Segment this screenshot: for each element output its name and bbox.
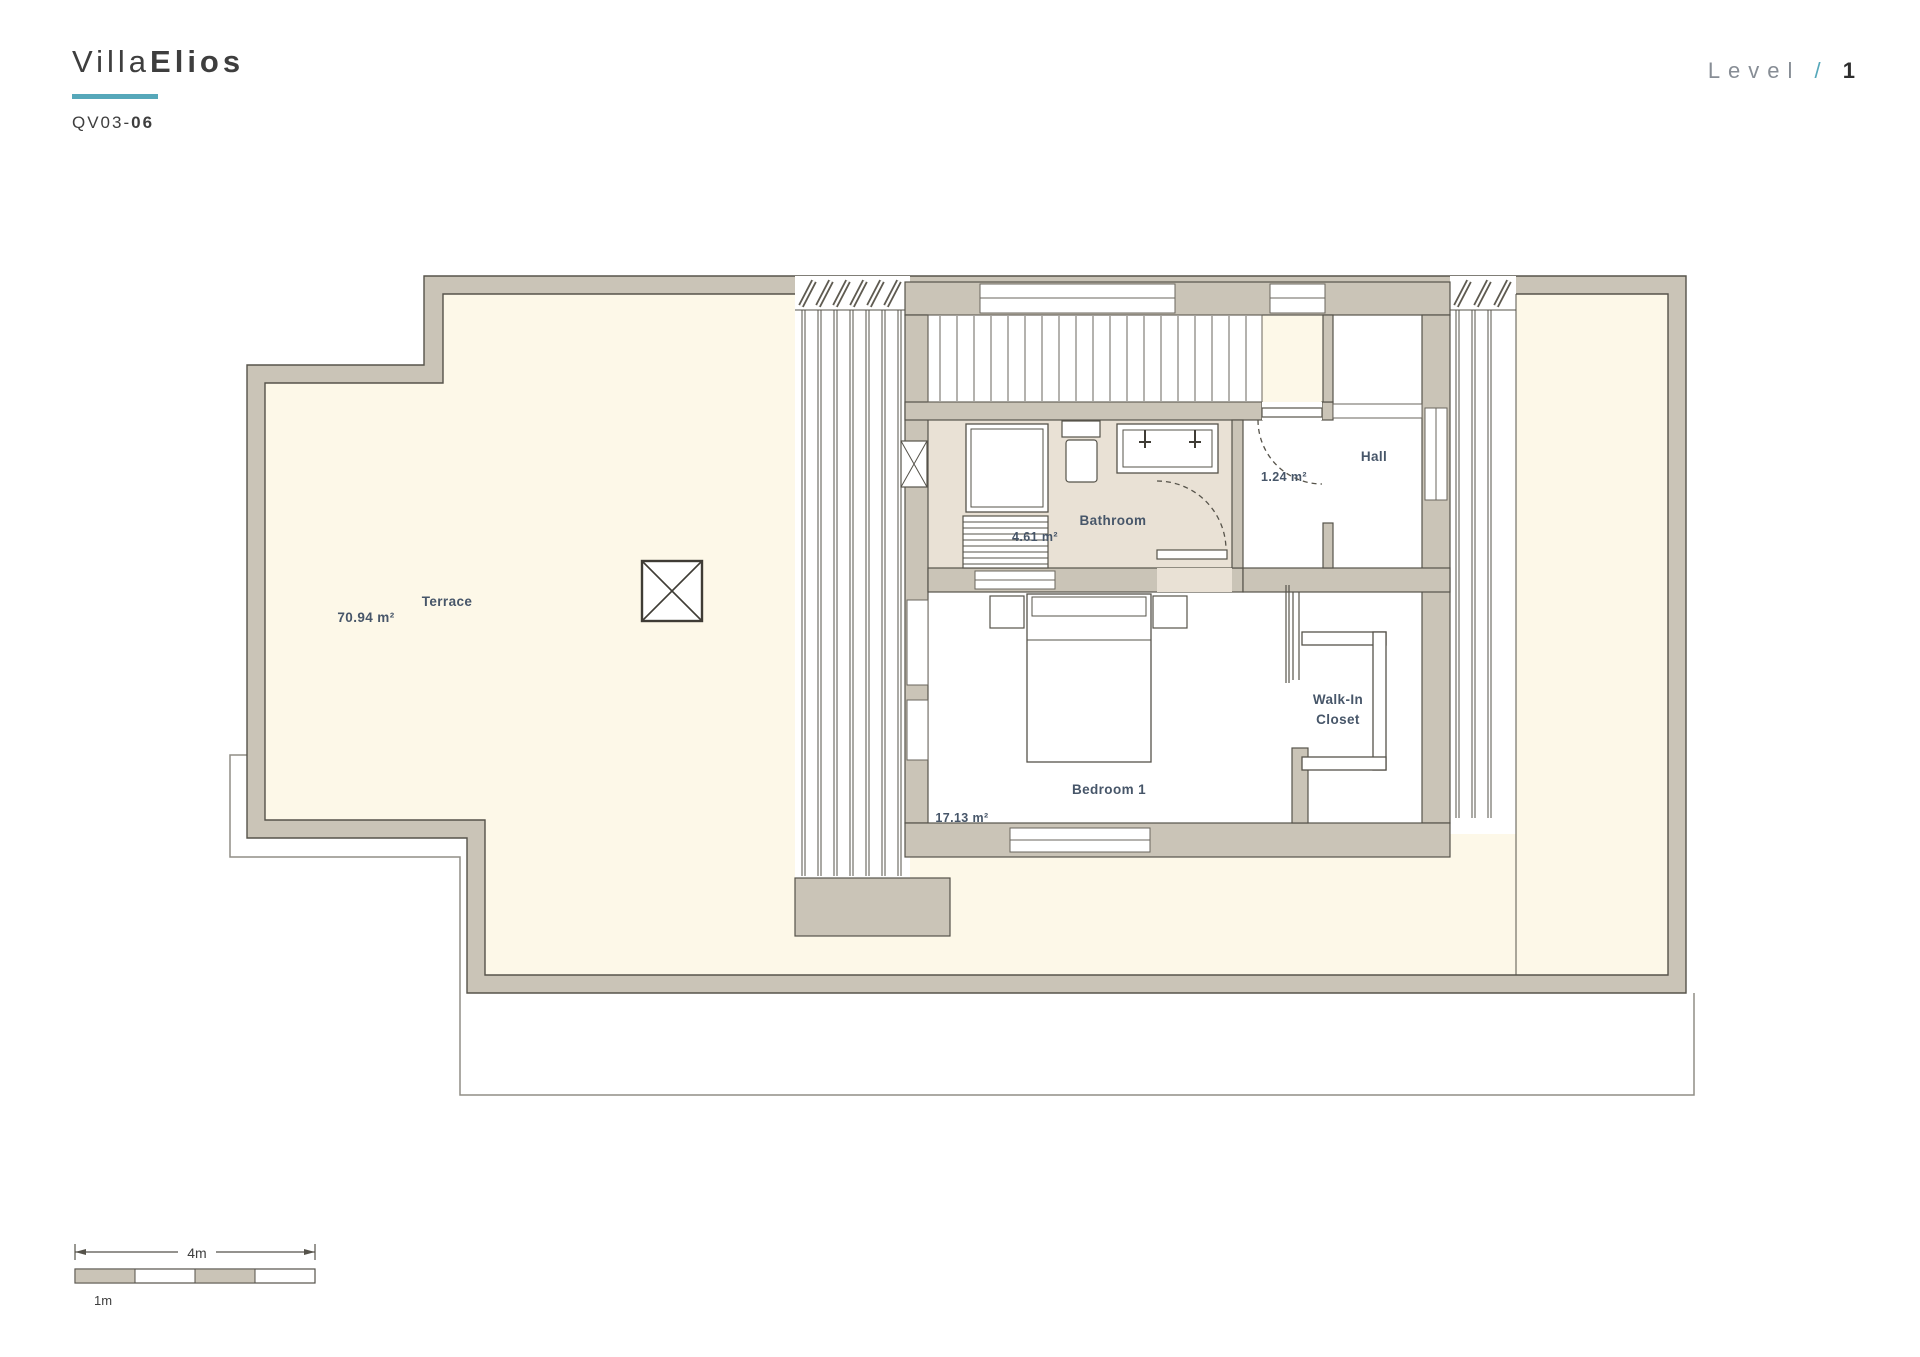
floor-plan-page: VillaElios QV03-06 Level / 1 xyxy=(0,0,1920,1357)
scale-unit-label: 1m xyxy=(94,1293,112,1308)
building xyxy=(901,282,1450,857)
bathroom-door-leaf xyxy=(1157,550,1227,559)
bathroom-area: 4.61 m² xyxy=(1012,530,1058,544)
hall-label: Hall xyxy=(1361,449,1387,464)
bedroom-area: 17.13 m² xyxy=(935,811,988,825)
window-bathroom-south xyxy=(975,571,1055,589)
wall-hall-niche-stub xyxy=(1323,523,1333,568)
headboard xyxy=(1032,597,1146,616)
skylight-icon xyxy=(642,561,702,621)
wall-niche-left-1 xyxy=(907,600,928,685)
bathroom-label: Bathroom xyxy=(1080,513,1147,528)
scale-bar: 4m 1m xyxy=(75,1244,315,1308)
wall-under-slats xyxy=(905,402,1262,420)
bathroom-door-opening xyxy=(1157,568,1232,592)
terrace-area: 70.94 m² xyxy=(337,610,394,625)
vanity xyxy=(1117,424,1218,473)
terrace-label: Terrace xyxy=(422,594,473,609)
nightstand-left xyxy=(990,596,1024,628)
duct-shaft-icon xyxy=(901,441,927,487)
wall-hall-left xyxy=(1232,420,1243,568)
wall-hall-south xyxy=(1243,568,1450,592)
window-hall-right xyxy=(1425,408,1447,500)
window-top-1 xyxy=(980,284,1175,313)
hall-area: 1.24 m² xyxy=(1261,470,1307,484)
floor-plan: Terrace 70.94 m² Bathroom 4.61 m² Hall 1… xyxy=(0,0,1920,1357)
closet-label-line1: Walk-In xyxy=(1313,692,1363,707)
wall-niche-left-2 xyxy=(907,700,928,760)
window-upper-hall xyxy=(1333,404,1422,418)
window-bedroom-south xyxy=(1010,828,1150,852)
window-top-2 xyxy=(1270,284,1325,313)
wall-upper-hall-left xyxy=(1323,315,1333,402)
closet-label-line2: Closet xyxy=(1316,712,1360,727)
wall-block-below-louvers xyxy=(795,878,950,936)
closet-floor xyxy=(1308,592,1422,823)
scale-total-label: 4m xyxy=(187,1245,206,1261)
toilet xyxy=(1062,421,1100,482)
wall-stub-hall-door xyxy=(1322,402,1333,420)
hall-door-leaf xyxy=(1262,408,1322,417)
upper-hall-floor xyxy=(1333,315,1422,402)
nightstand-right xyxy=(1153,596,1187,628)
wall-building-south xyxy=(905,823,1450,857)
bedroom-label: Bedroom 1 xyxy=(1072,782,1146,797)
shower xyxy=(966,424,1048,512)
